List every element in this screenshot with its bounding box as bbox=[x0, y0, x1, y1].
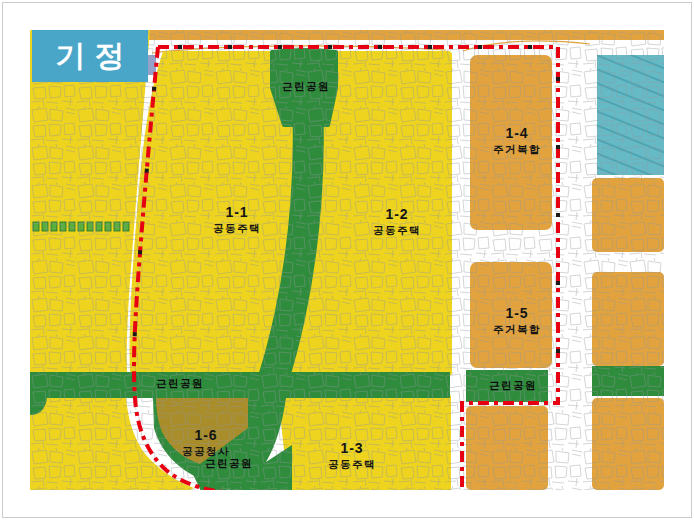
zone-label-1-1: 1-1 공동주택 bbox=[213, 204, 261, 235]
zone-label-1-3: 1-3 공동주택 bbox=[328, 440, 376, 471]
zone-label-1-4: 1-4 주거복합 bbox=[493, 125, 541, 156]
zone-code: 1-6 bbox=[182, 427, 230, 445]
zone-use: 공동주택 bbox=[213, 221, 261, 234]
zone-label-1-5: 1-5 주거복합 bbox=[493, 305, 541, 336]
zone-use: 주거복합 bbox=[493, 142, 541, 155]
zone-code: 1-3 bbox=[328, 440, 376, 458]
zone-code: 1-2 bbox=[373, 206, 421, 224]
zoning-map-figure: 기정 1-1 공동주택 1-2 공동주택 1-3 공동주택 1-4 주거복합 1… bbox=[0, 0, 694, 520]
street-grid-texture bbox=[30, 30, 664, 490]
zone-use: 공동주택 bbox=[328, 457, 376, 470]
zone-code: 1-4 bbox=[493, 125, 541, 143]
zone-use: 공동주택 bbox=[373, 223, 421, 236]
zone-use: 주거복합 bbox=[493, 322, 541, 335]
zoning-map-canvas bbox=[30, 30, 664, 490]
zone-use: 공공청사 bbox=[182, 444, 230, 457]
zone-code: 1-1 bbox=[213, 204, 261, 222]
park-label-south: 근린공원 bbox=[205, 457, 253, 471]
status-badge: 기정 bbox=[32, 30, 148, 82]
park-label-top: 근린공원 bbox=[282, 80, 330, 94]
park-label-west-band: 근린공원 bbox=[156, 377, 204, 391]
park-label-east-band: 근린공원 bbox=[489, 379, 537, 393]
zone-label-1-6: 1-6 공공청사 bbox=[182, 427, 230, 458]
zone-label-1-2: 1-2 공동주택 bbox=[373, 206, 421, 237]
zone-code: 1-5 bbox=[493, 305, 541, 323]
